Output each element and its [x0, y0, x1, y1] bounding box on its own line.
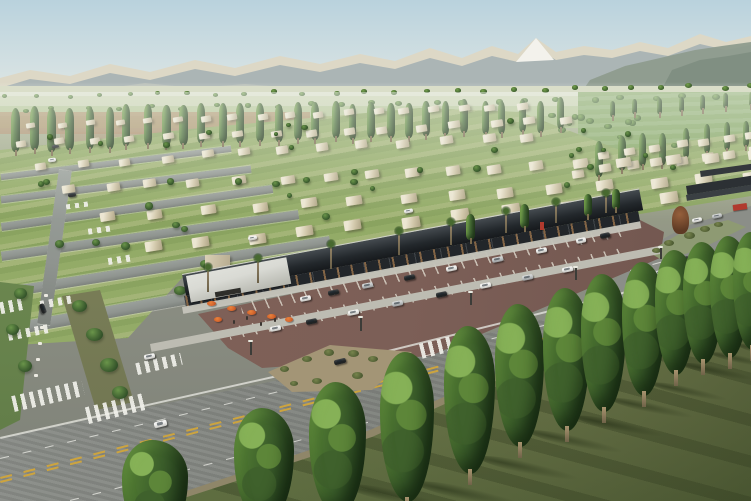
umbrella	[214, 317, 222, 322]
yard-tree	[417, 167, 423, 172]
distant-tree	[511, 87, 517, 92]
yard-tree	[163, 142, 169, 148]
distant-tree	[542, 88, 548, 93]
distant-tree	[424, 89, 430, 94]
shrub	[302, 356, 312, 362]
distant-tree	[241, 92, 247, 96]
pedestrian	[246, 316, 248, 320]
distant-tree	[155, 91, 160, 95]
distant-tree	[391, 90, 397, 95]
yard-tree	[121, 242, 130, 249]
street-lamp	[470, 293, 472, 305]
yard-tree	[274, 132, 278, 136]
shrub	[280, 366, 289, 372]
poplar-row-right	[639, 133, 646, 166]
street-lamp	[250, 342, 252, 355]
pedestrian	[274, 318, 276, 322]
house	[375, 126, 387, 134]
bollard	[40, 326, 44, 329]
poplar-row-mid	[387, 103, 395, 139]
courtyard-poplar	[584, 194, 592, 216]
poplar-row-far-right	[632, 99, 637, 115]
poplar-row-far-right	[723, 93, 728, 107]
house	[747, 149, 751, 160]
pedestrian	[260, 322, 262, 326]
poplar-row-mid	[179, 105, 187, 145]
yard-tree	[145, 202, 154, 209]
distant-tree	[586, 118, 593, 124]
yard-tree	[350, 179, 358, 186]
house	[144, 239, 162, 252]
house	[316, 142, 329, 151]
street-lamp	[575, 268, 577, 280]
median-tree	[112, 386, 128, 399]
shrub	[352, 372, 363, 379]
parkway-tree	[18, 360, 32, 372]
yard-tree	[601, 148, 605, 152]
scene-aerial-community-render	[0, 0, 751, 501]
shrub	[324, 349, 334, 356]
distant-tree	[602, 86, 609, 91]
distant-tree	[455, 88, 461, 93]
distant-tree	[271, 89, 277, 93]
poplar-row-mid	[294, 102, 302, 140]
distant-tree	[184, 91, 189, 95]
distant-tree	[712, 94, 720, 100]
distant-tree	[23, 109, 29, 113]
storefront-sign	[540, 222, 544, 230]
house	[257, 113, 268, 120]
yard-tree	[587, 164, 594, 170]
distant-tree	[658, 85, 665, 90]
house	[25, 122, 35, 128]
palm-tree	[395, 228, 403, 253]
yard-tree	[301, 125, 307, 130]
parkway-tree	[14, 288, 27, 299]
distant-tree	[747, 83, 751, 88]
field-tree	[625, 119, 632, 124]
distant-tree	[572, 114, 579, 119]
bollard	[44, 294, 48, 297]
poplar-row-far-right	[610, 101, 615, 117]
yard-tree	[351, 169, 357, 175]
poplar-row-mid	[219, 103, 227, 142]
house	[745, 131, 751, 140]
house	[398, 107, 409, 115]
poplar-row-mid	[498, 101, 505, 134]
yard-tree	[322, 213, 330, 220]
bollard	[38, 342, 42, 345]
poplar-row-far-right	[679, 97, 684, 112]
poplar-row-far-right	[657, 98, 662, 113]
palm-tree	[502, 208, 510, 231]
poplar-row-mid	[537, 101, 544, 133]
house	[99, 211, 115, 222]
median-tree	[100, 358, 118, 372]
poplar-row-mid	[144, 104, 153, 145]
shrub	[714, 222, 723, 227]
shrub	[348, 350, 359, 357]
poplar-row-mid	[367, 102, 375, 138]
poplar-row-mid	[256, 103, 264, 142]
courtyard-poplar	[466, 214, 475, 240]
distant-tree	[480, 89, 486, 94]
distant-tree	[245, 103, 252, 108]
poplar-row-mid	[332, 101, 340, 138]
yard-tree	[569, 153, 574, 158]
pedestrian	[233, 320, 235, 324]
distant-tree	[722, 86, 729, 91]
ornamental-red-tree	[672, 206, 689, 234]
median-tree	[72, 300, 87, 312]
yard-tree	[643, 153, 648, 157]
yard-tree	[272, 181, 280, 188]
shrub	[368, 356, 378, 362]
foreground-tree	[309, 382, 366, 501]
distant-tree	[334, 91, 340, 95]
yard-tree	[564, 182, 570, 188]
bollard	[34, 374, 38, 377]
courtyard-poplar	[612, 189, 620, 209]
poplar-row-far-right	[700, 95, 705, 110]
poplar-row-mid	[65, 108, 74, 151]
shrub	[312, 378, 322, 384]
yard-tree	[303, 177, 310, 183]
shrub	[684, 232, 695, 239]
street-lamp	[360, 318, 362, 331]
house	[598, 151, 610, 160]
field-tree	[604, 124, 612, 130]
poplar-row-mid	[442, 101, 449, 135]
palm-tree	[552, 199, 560, 221]
house	[306, 129, 318, 137]
yard-tree	[167, 178, 174, 184]
yard-tree	[625, 131, 631, 137]
shrub	[700, 226, 710, 232]
palm-tree	[447, 219, 455, 243]
yard-tree	[55, 240, 64, 247]
umbrella	[285, 317, 293, 322]
shrub	[290, 381, 298, 386]
palm-tree	[327, 241, 335, 267]
poplar-row-mid	[30, 106, 39, 150]
distant-tree	[577, 114, 585, 120]
street-lamp	[660, 248, 662, 259]
courtyard-poplar	[520, 204, 529, 228]
yard-tree	[473, 165, 481, 172]
foreground-tree	[234, 408, 294, 501]
yard-tree	[181, 226, 188, 232]
umbrella	[227, 306, 236, 311]
palm-tree	[204, 264, 212, 290]
umbrella	[207, 301, 216, 306]
house	[519, 133, 533, 143]
palm-tree	[254, 255, 262, 281]
distant-tree	[616, 95, 624, 101]
yard-tree	[576, 147, 582, 152]
house	[123, 135, 134, 143]
poplar-row-mid	[106, 107, 115, 149]
umbrella	[247, 310, 256, 315]
parkway-tree	[6, 324, 19, 335]
median-tree	[86, 328, 103, 341]
yard-tree	[172, 222, 179, 229]
yard-tree	[92, 239, 100, 246]
shrub	[664, 240, 674, 246]
distant-tree	[361, 89, 367, 93]
bollard	[36, 358, 40, 361]
palm-tree	[602, 190, 610, 211]
yard-tree	[47, 134, 53, 140]
